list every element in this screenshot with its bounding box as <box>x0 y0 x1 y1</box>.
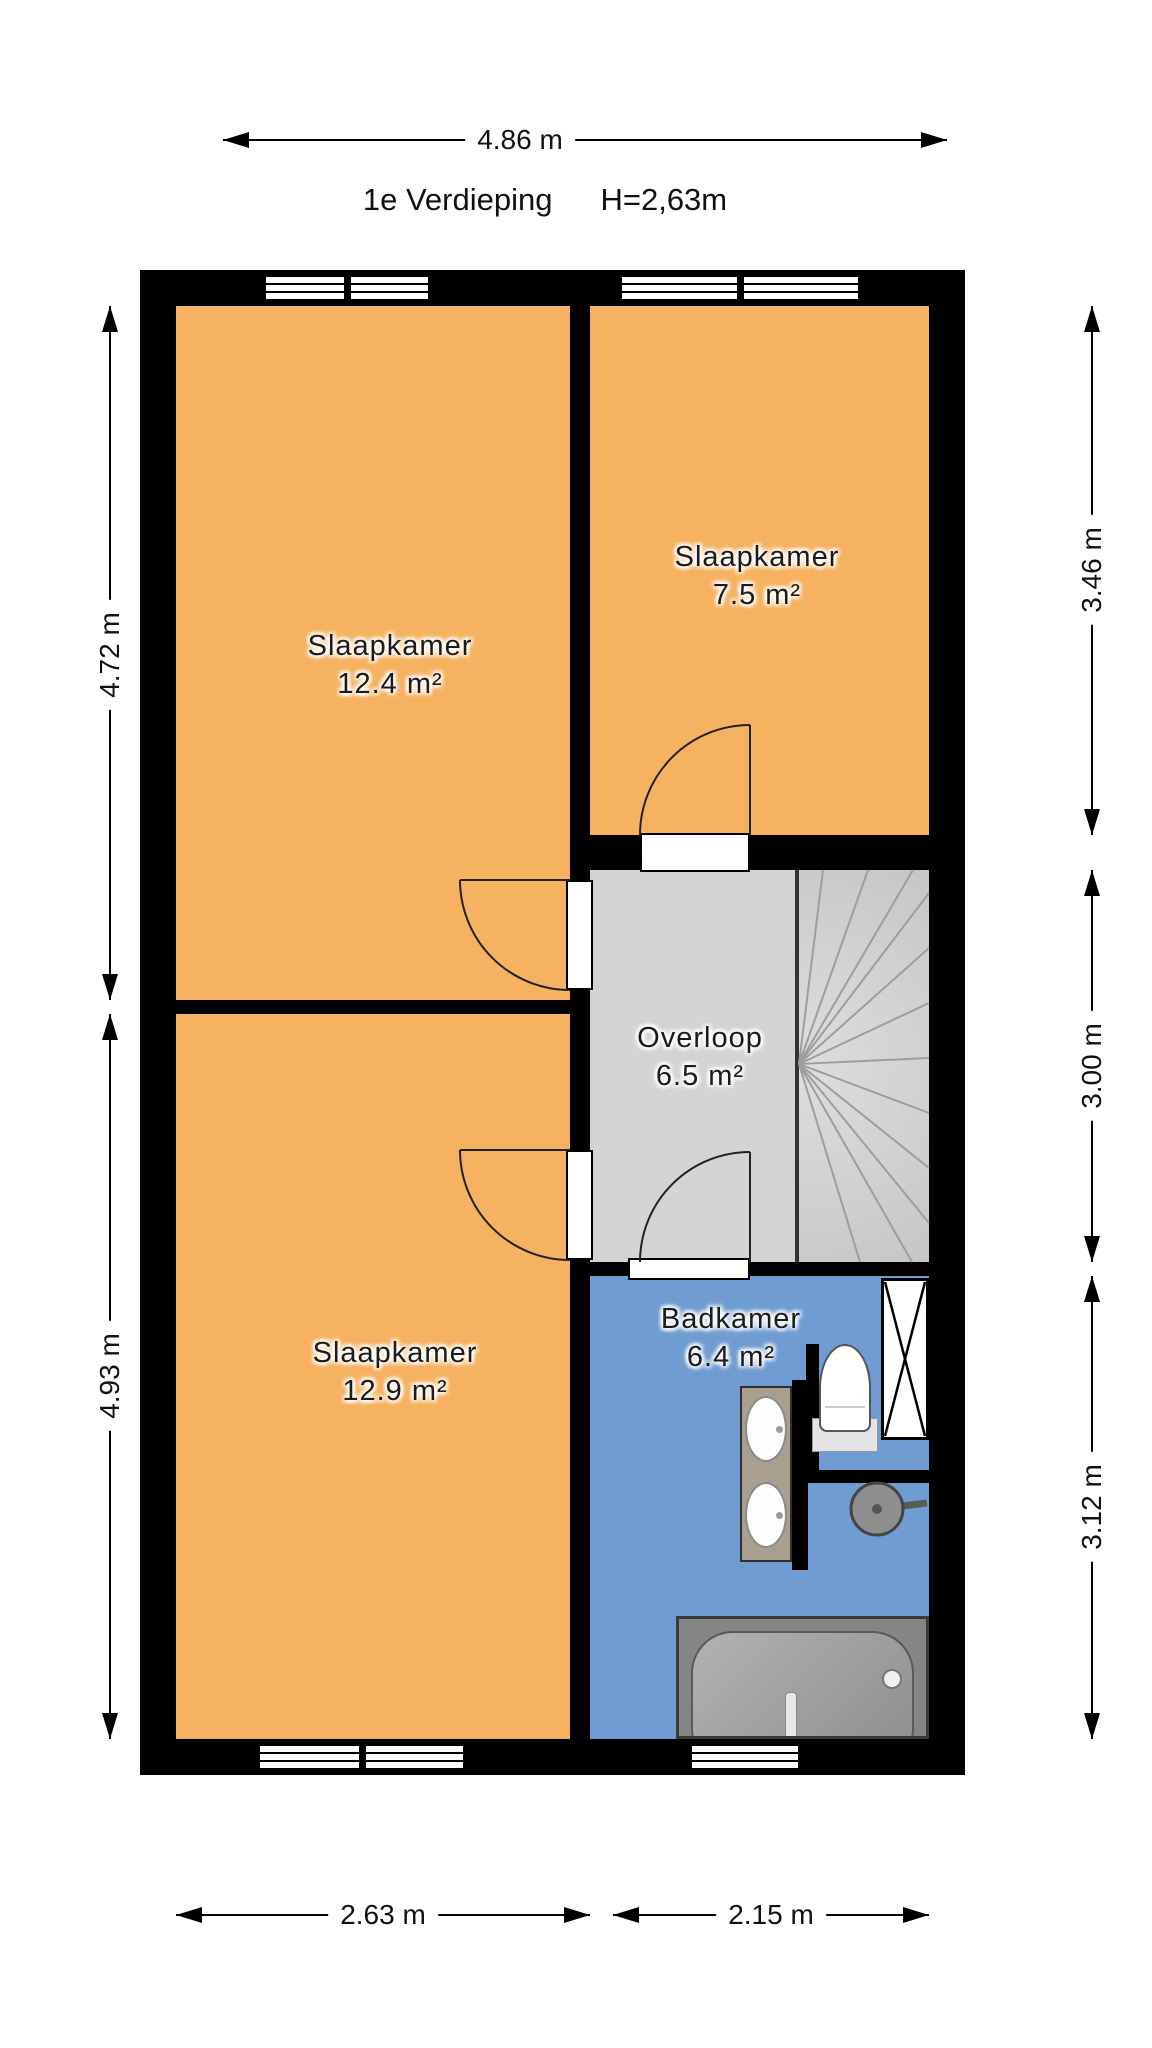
dim-right-upper: 3.46 m <box>1076 515 1108 625</box>
wall-bathroom-top-right <box>750 1262 929 1276</box>
window-mullion <box>359 1746 366 1768</box>
door-bedroom3 <box>566 1150 593 1260</box>
room-name: Slaapkamer <box>313 1334 478 1372</box>
wall-stub-under-toilet <box>806 1470 929 1483</box>
wall-right <box>929 270 965 1775</box>
window-bedroom3 <box>258 1744 465 1770</box>
label-bedroom-2: Slaapkamer 7.5 m² <box>675 538 840 614</box>
window-bathroom <box>690 1744 800 1770</box>
wall-bedroom2-bottom-left <box>570 835 640 870</box>
plan-title: 1e Verdieping H=2,63m <box>363 182 727 218</box>
dim-top-width: 4.86 m <box>465 124 575 156</box>
window-mullion <box>344 277 351 299</box>
room-area: 6.4 m² <box>661 1338 801 1376</box>
window-bedroom2 <box>620 275 860 301</box>
label-landing: Overloop 6.5 m² <box>637 1019 763 1095</box>
bathtub-drain <box>785 1692 797 1739</box>
double-washbasin <box>740 1386 792 1562</box>
toilet <box>819 1344 871 1432</box>
dim-right-middle: 3.00 m <box>1076 1011 1108 1121</box>
label-bedroom-1: Slaapkamer 12.4 m² <box>308 627 473 703</box>
door-bathroom <box>628 1258 750 1280</box>
room-area: 12.4 m² <box>308 665 473 703</box>
dim-left-upper: 4.72 m <box>94 600 126 710</box>
window-mullion <box>737 277 744 299</box>
room-area: 6.5 m² <box>637 1057 763 1095</box>
room-name: Badkamer <box>661 1300 801 1338</box>
dim-bottom-left: 2.63 m <box>328 1899 438 1931</box>
room-area: 12.9 m² <box>313 1372 478 1410</box>
window-bedroom1 <box>264 275 430 301</box>
room-name: Slaapkamer <box>675 538 840 576</box>
duct-shaft <box>881 1278 929 1440</box>
staircase <box>798 870 929 1262</box>
wall-bathroom-top-left <box>590 1262 628 1276</box>
door-bedroom1 <box>566 880 593 990</box>
ceiling-height: H=2,63m <box>600 182 727 218</box>
wall-partition-middle <box>570 990 590 1150</box>
wall-bedroom1-bedroom3 <box>140 1000 590 1014</box>
floor-name: 1e Verdieping <box>363 182 553 218</box>
washbasin-sink <box>745 1482 787 1548</box>
wall-bedroom2-bottom-right <box>750 835 929 870</box>
wall-stub-vanity <box>792 1380 808 1570</box>
wall-partition-lower <box>570 1260 590 1739</box>
room-area: 7.5 m² <box>675 576 840 614</box>
wall-stair-stringer <box>795 870 799 1262</box>
wall-left <box>140 270 176 1775</box>
bathtub-faucet <box>882 1669 902 1689</box>
bathtub <box>676 1616 929 1739</box>
label-bedroom-3: Slaapkamer 12.9 m² <box>313 1334 478 1410</box>
room-name: Slaapkamer <box>308 627 473 665</box>
washbasin-sink <box>745 1396 787 1462</box>
floorplan-canvas: 1e Verdieping H=2,63m <box>0 0 1152 2048</box>
label-bathroom: Badkamer 6.4 m² <box>661 1300 801 1376</box>
room-name: Overloop <box>637 1019 763 1057</box>
dim-right-lower: 3.12 m <box>1076 1452 1108 1562</box>
bathtub-basin <box>691 1631 914 1739</box>
dim-bottom-right: 2.15 m <box>716 1899 826 1931</box>
dim-left-lower: 4.93 m <box>94 1321 126 1431</box>
door-bedroom2 <box>640 833 750 872</box>
wall-partition-upper <box>570 306 590 880</box>
